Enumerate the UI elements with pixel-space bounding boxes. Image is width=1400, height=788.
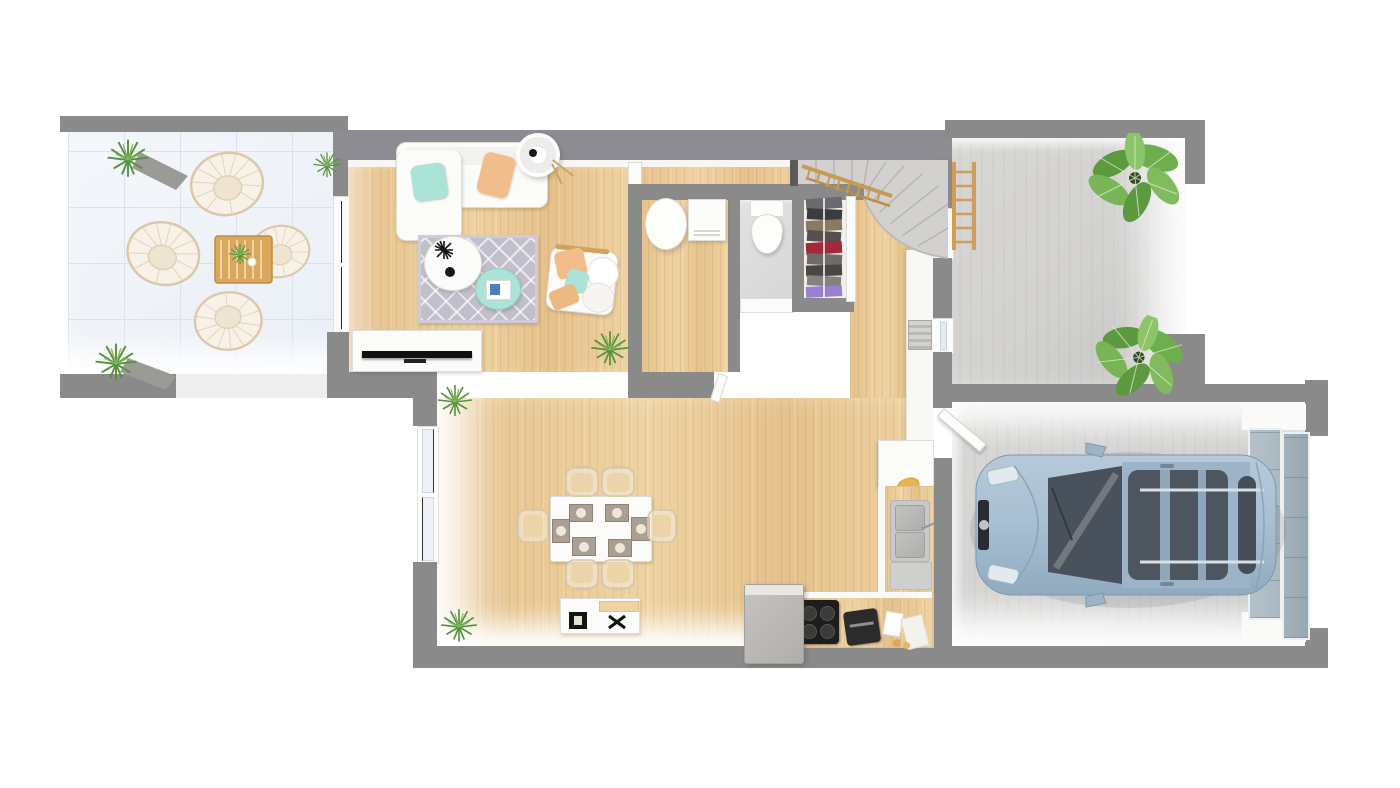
wall-segment — [932, 258, 952, 318]
terrace-floor — [68, 132, 348, 376]
plate — [579, 542, 589, 552]
sliding-door-pane — [341, 267, 347, 329]
kitchen-counter-edge — [878, 486, 885, 592]
plate — [556, 526, 566, 536]
placemat — [552, 519, 570, 543]
side-table-mint — [475, 268, 521, 310]
kitchen-sink-unit — [890, 500, 930, 562]
kitchen-wall-cabinet-column — [906, 250, 933, 458]
floor-plan-canvas — [0, 0, 1400, 788]
kitchen-lower-cabinet — [890, 562, 932, 590]
wall-utility-west — [628, 190, 642, 372]
east-window — [932, 318, 954, 354]
sofa-pillow-mint — [410, 162, 449, 202]
front-door — [932, 208, 954, 260]
dining-windows — [417, 426, 439, 564]
window-pane — [422, 429, 434, 493]
garage-door-panel — [1248, 428, 1282, 620]
courtyard-floor — [948, 138, 1185, 384]
radiator — [908, 320, 932, 350]
closet-sliding-door — [846, 196, 856, 302]
plate — [576, 508, 586, 518]
fridge — [744, 584, 804, 664]
sideboard-wood-top — [599, 601, 639, 612]
placemat — [605, 504, 629, 522]
kitchen-counter-edge — [795, 592, 932, 598]
wall-house-bottom — [413, 646, 1328, 668]
plate — [612, 508, 622, 518]
coffee-machine-trim — [850, 621, 874, 627]
plate — [636, 524, 646, 534]
washing-machine-vent — [694, 228, 720, 236]
coffee-machine — [843, 608, 881, 646]
window-pane — [940, 322, 947, 350]
wall-segment — [932, 158, 952, 208]
wall-courtyard-garage-divider — [945, 384, 1307, 402]
placemat — [572, 537, 596, 556]
wall-terrace-top — [60, 116, 348, 132]
terrace-sliding-door — [333, 196, 350, 336]
sideboard — [560, 598, 640, 634]
burner — [820, 624, 835, 639]
burner — [802, 606, 817, 621]
wall-terrace-bottom — [60, 374, 176, 398]
fridge-top — [745, 585, 803, 595]
wall-courtyard-right-bottom — [1162, 334, 1205, 386]
armchair — [545, 244, 622, 317]
sliding-door-pane — [336, 201, 342, 263]
sideboard-decor-frame — [569, 612, 587, 629]
jar — [903, 642, 910, 649]
tv — [362, 351, 472, 358]
wall-closet-south — [792, 298, 854, 312]
wall-segment — [413, 392, 437, 426]
wall-segment — [333, 158, 348, 196]
decor-art — [574, 616, 582, 625]
clothes-rail — [823, 198, 825, 298]
sink-basin — [895, 532, 925, 558]
placemat — [608, 539, 632, 557]
washing-machine — [688, 199, 726, 241]
jar — [893, 639, 901, 647]
floor-lamp-bulb — [529, 149, 537, 157]
garage-door-panel — [1282, 432, 1310, 640]
wall-wc-closet — [792, 200, 804, 298]
plate — [615, 543, 625, 553]
window-pane — [422, 497, 434, 561]
book-cover-art — [490, 284, 500, 295]
garage-door-trim-top — [1242, 404, 1306, 430]
placemat — [631, 517, 650, 541]
water-heater — [645, 198, 687, 250]
wall-terrace-bottom-sunlit — [176, 374, 336, 398]
tv-base — [404, 359, 426, 363]
wall-garage-right-top — [1305, 380, 1328, 436]
wall-courtyard-right-top — [1185, 120, 1205, 184]
book — [486, 280, 511, 300]
wc-door — [740, 298, 794, 313]
wall-utility-east — [728, 198, 740, 372]
dining-table — [550, 496, 652, 562]
burner — [820, 606, 835, 621]
coffee-table-cup — [445, 267, 455, 277]
coffee-table — [424, 236, 482, 291]
placemat — [569, 504, 593, 522]
wall-utility-south — [628, 372, 714, 398]
floor-lamp — [516, 133, 560, 177]
closet-clothes — [806, 198, 844, 298]
wall-stairs-stub — [790, 160, 798, 186]
wall-segment — [932, 458, 952, 648]
burner — [802, 624, 817, 639]
wall-courtyard-top — [945, 120, 1205, 138]
